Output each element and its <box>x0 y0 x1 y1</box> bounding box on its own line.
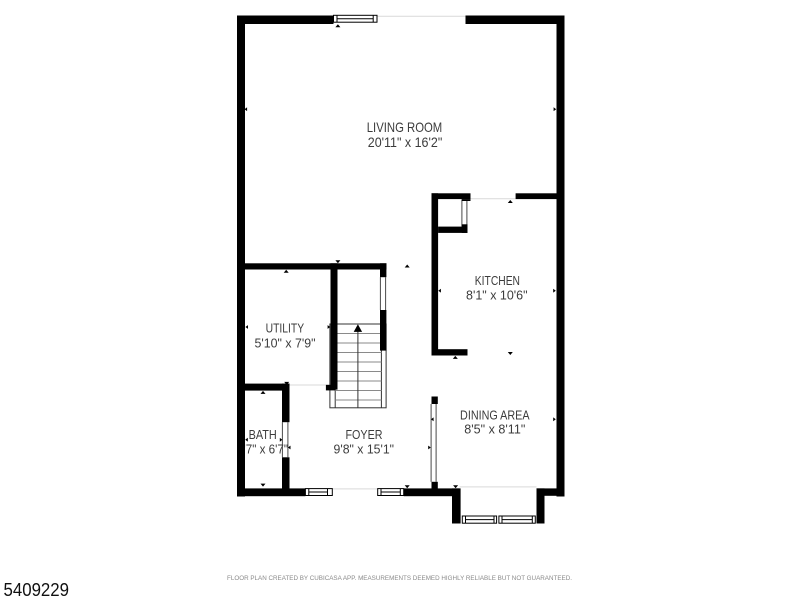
svg-text:KITCHEN: KITCHEN <box>475 274 520 288</box>
svg-text:FOYER: FOYER <box>346 428 383 442</box>
svg-text:20'11" x 16'2": 20'11" x 16'2" <box>368 134 443 150</box>
svg-text:5409229: 5409229 <box>4 579 70 600</box>
svg-text:UTILITY: UTILITY <box>266 320 305 335</box>
svg-text:8'1" x 10'6": 8'1" x 10'6" <box>466 289 528 303</box>
svg-text:FLOOR PLAN CREATED BY CUBICASA: FLOOR PLAN CREATED BY CUBICASA APP. MEAS… <box>227 575 572 582</box>
svg-text:5'10" x 7'9": 5'10" x 7'9" <box>255 335 316 350</box>
svg-text:LIVING ROOM: LIVING ROOM <box>367 119 443 135</box>
svg-text:9'8" x 15'1": 9'8" x 15'1" <box>334 443 395 457</box>
svg-text:8'5" x 8'11": 8'5" x 8'11" <box>464 421 525 436</box>
svg-text:DINING AREA: DINING AREA <box>460 407 530 422</box>
svg-text:BATH: BATH <box>249 428 277 442</box>
